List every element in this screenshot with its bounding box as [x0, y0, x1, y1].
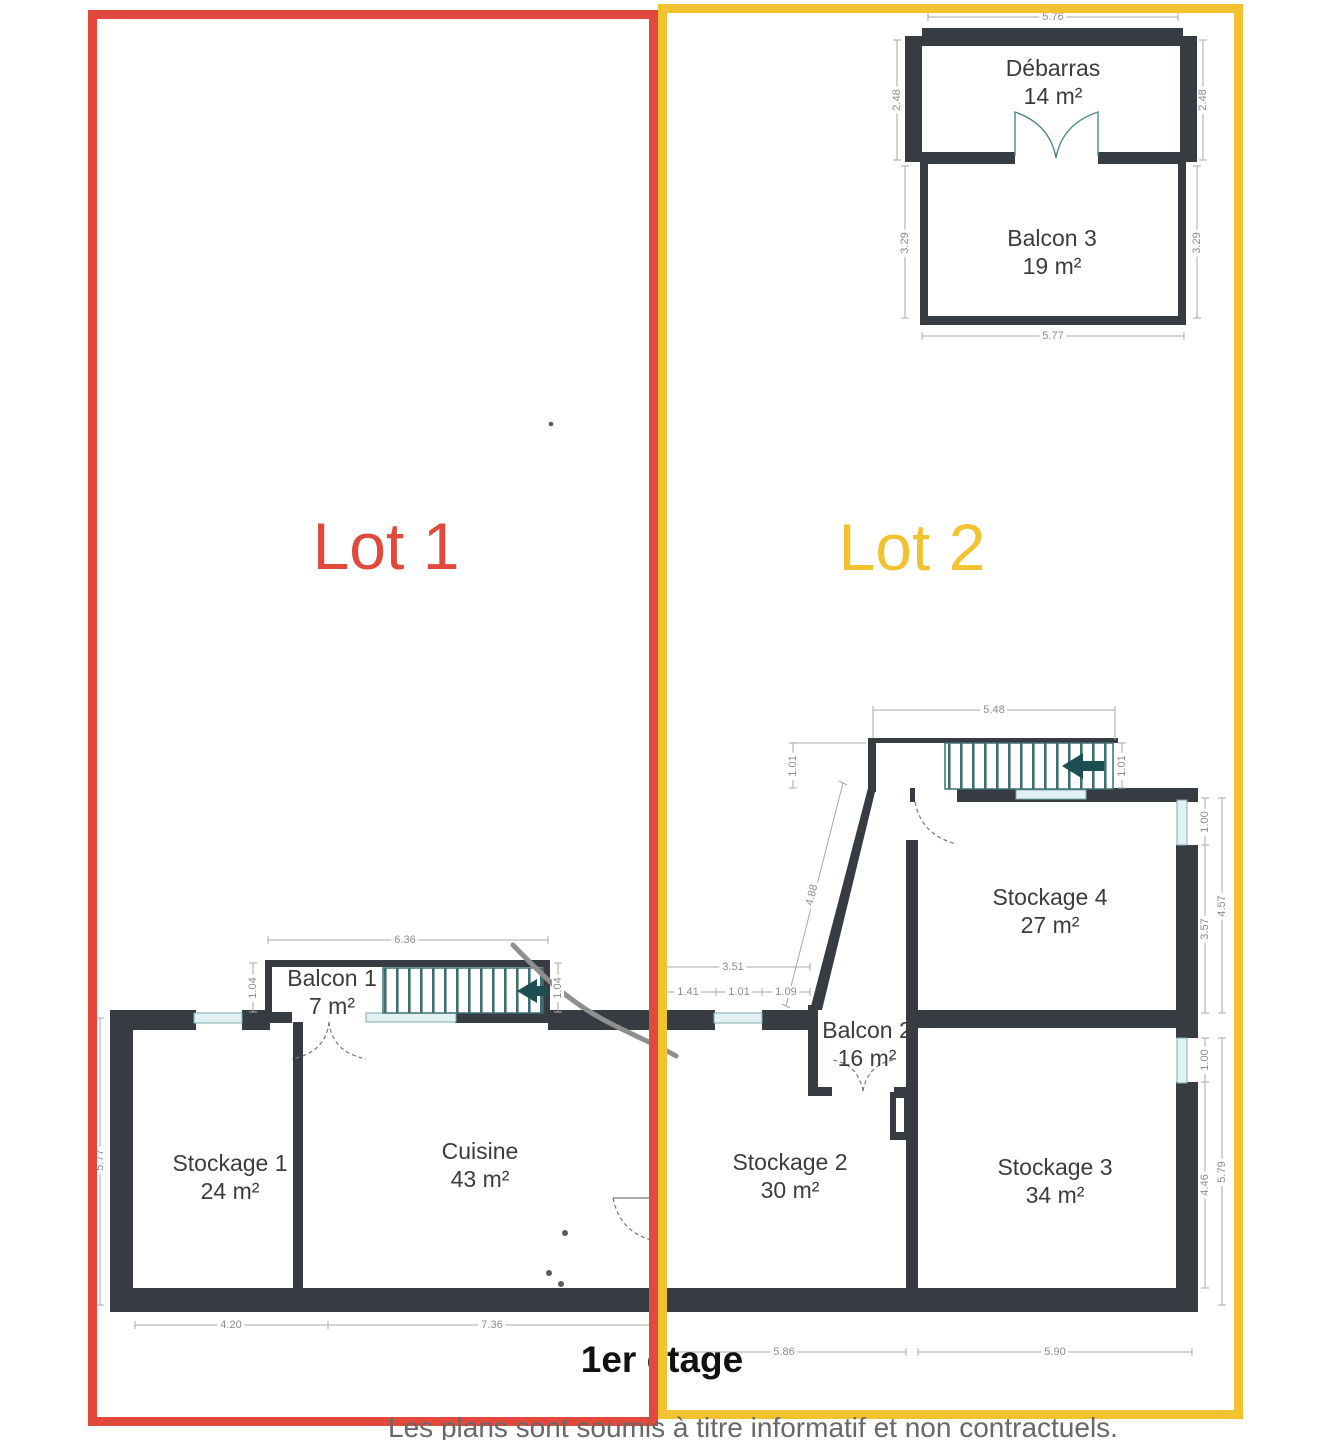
window-stockage3-right	[1177, 1038, 1187, 1083]
room-name: Stockage 3	[997, 1153, 1112, 1181]
wall-debarras-bottom-right	[1098, 152, 1183, 164]
wall-balcon3-right	[1178, 162, 1186, 322]
dim-label: 5.86	[770, 1346, 797, 1358]
window-stockage4-right	[1177, 800, 1187, 845]
dim-label: 1.00	[1199, 1046, 1211, 1073]
room-label-stockage4: Stockage 4 27 m²	[992, 883, 1107, 939]
stray-dots	[546, 422, 568, 1287]
dim-label: 5.77	[1039, 330, 1066, 342]
window-under-balcon1	[366, 1013, 456, 1022]
dim-label: 2.48	[1197, 86, 1209, 113]
room-name: Stockage 1	[172, 1149, 287, 1177]
room-label-stockage2: Stockage 2 30 m²	[732, 1148, 847, 1204]
door-arc-stockage4	[915, 802, 957, 844]
wall-balcon3-left	[920, 162, 928, 322]
dim-label: 1.09	[772, 986, 799, 998]
wall-stairs-left-stub	[868, 738, 876, 792]
room-area: 43 m²	[442, 1165, 519, 1193]
dim-label: 3.29	[1191, 229, 1203, 256]
chimney-flue-slot	[896, 1098, 904, 1132]
room-area: 30 m²	[732, 1176, 847, 1204]
room-label-balcon2: Balcon 2 16 m²	[822, 1016, 912, 1072]
wall-debarras-top	[922, 28, 1183, 46]
dim-label: 5.77	[94, 1146, 106, 1173]
wall-debarras-right	[1180, 36, 1197, 162]
room-label-cuisine: Cuisine 43 m²	[442, 1137, 519, 1193]
room-name: Stockage 4	[992, 883, 1107, 911]
dim-label: 1.04	[552, 974, 564, 1001]
wall-main-top-d	[762, 1010, 815, 1030]
window-stockage1	[194, 1013, 242, 1023]
wall-balcon1-left	[265, 960, 272, 1016]
dim-label: 4.46	[1199, 1171, 1211, 1198]
lot2-label: Lot 2	[839, 509, 986, 585]
dim-label: 7.36	[478, 1319, 505, 1331]
dim-label: 1.01	[787, 752, 799, 779]
window-under-stairs	[1016, 790, 1086, 799]
room-label-stockage1: Stockage 1 24 m²	[172, 1149, 287, 1205]
wall-stockage4-stockage3	[906, 1010, 1198, 1028]
dim-label: 3.57	[1199, 915, 1211, 942]
dim-label: 4.20	[217, 1319, 244, 1331]
wall-main-left	[110, 1010, 133, 1312]
room-name: Balcon 3	[1007, 224, 1097, 252]
room-area: 24 m²	[172, 1177, 287, 1205]
wall-debarras-left	[905, 36, 922, 162]
dim-label: 1.01	[725, 986, 752, 998]
room-label-debarras: Débarras 14 m²	[1006, 54, 1101, 110]
dim-label: 1.04	[247, 974, 259, 1001]
wall-main-right-b	[1176, 1082, 1198, 1312]
dim-label: 1.41	[674, 986, 701, 998]
wall-stockage1-cuisine	[293, 1022, 303, 1288]
dim-label: 5.90	[1041, 1346, 1068, 1358]
room-area: 34 m²	[997, 1181, 1112, 1209]
door-arc-cuisine	[613, 1198, 652, 1240]
dim-label: 5.79	[1216, 1158, 1228, 1185]
room-name: Balcon 1	[287, 964, 377, 992]
wall-balcon2-left	[808, 1005, 818, 1095]
wall-cuisine-stockage2	[650, 1022, 666, 1288]
floor-plan-page: 5.76 2.48 2.48 3.29 3.29 5.77 5.48 1.01 …	[0, 0, 1335, 1440]
dim-label: 2.48	[891, 86, 903, 113]
disclaimer-text: Les plans sont soumis à titre informatif…	[388, 1412, 1118, 1440]
room-label-stockage3: Stockage 3 34 m²	[997, 1153, 1112, 1209]
room-area: 27 m²	[992, 911, 1107, 939]
wall-diagonal	[810, 788, 876, 1010]
wall-main-bottom	[110, 1288, 1198, 1312]
wall-main-top-a	[110, 1010, 196, 1030]
room-area: 7 m²	[287, 992, 377, 1020]
room-area: 16 m²	[822, 1044, 912, 1072]
room-name: Stockage 2	[732, 1148, 847, 1176]
floor-title: 1er étage	[581, 1339, 744, 1381]
wall-below-stairs-a	[910, 788, 915, 802]
dim-label: 3.29	[899, 229, 911, 256]
wall-balcon2-bottom-left	[808, 1087, 832, 1096]
room-label-balcon3: Balcon 3 19 m²	[1007, 224, 1097, 280]
dim-label: 6.36	[391, 934, 418, 946]
walls	[110, 28, 1198, 1312]
room-name: Cuisine	[442, 1137, 519, 1165]
dim-label: 3.51	[719, 961, 746, 973]
wall-balcon3-bottom	[920, 316, 1186, 325]
lot1-label: Lot 1	[313, 508, 460, 584]
wall-main-top-c	[548, 1010, 715, 1030]
room-name: Débarras	[1006, 54, 1101, 82]
dim-label: 1.01	[1116, 752, 1128, 779]
window-stockage2	[714, 1013, 762, 1023]
debarras-double-door	[1015, 112, 1098, 158]
room-area: 14 m²	[1006, 82, 1101, 110]
door-arc-balcon1-right	[329, 1022, 366, 1059]
dim-label: 4.57	[1216, 892, 1228, 919]
wall-stockage4-right	[1176, 845, 1198, 1013]
room-area: 19 m²	[1007, 252, 1097, 280]
wall-debarras-bottom-left	[922, 152, 1015, 164]
dim-label: 1.00	[1199, 808, 1211, 835]
room-label-balcon1: Balcon 1 7 m²	[287, 964, 377, 1020]
room-name: Balcon 2	[822, 1016, 912, 1044]
floor-plan-drawing	[0, 0, 1335, 1440]
dim-label: 5.76	[1039, 11, 1066, 23]
dim-label: 5.48	[980, 704, 1007, 716]
